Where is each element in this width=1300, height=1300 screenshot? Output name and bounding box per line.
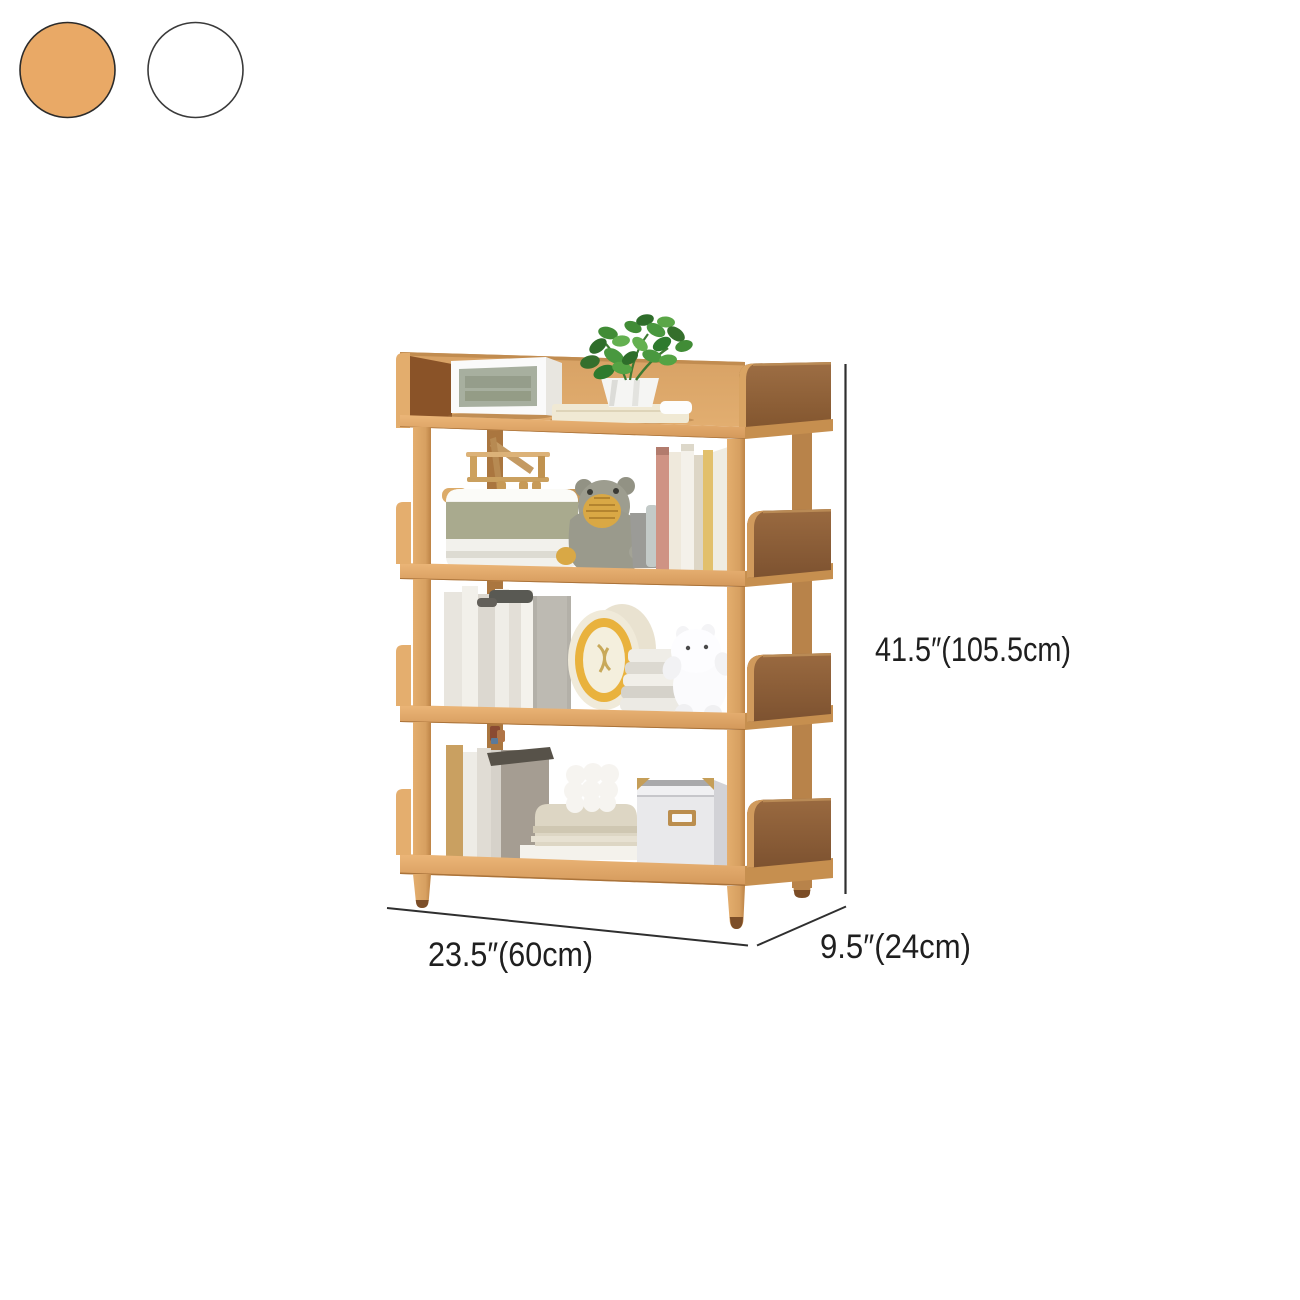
svg-text:9.5″(24cm): 9.5″(24cm) (820, 928, 971, 966)
svg-text:41.5″(105.5cm): 41.5″(105.5cm) (875, 631, 1071, 669)
svg-text:23.5″(60cm): 23.5″(60cm) (428, 936, 593, 974)
